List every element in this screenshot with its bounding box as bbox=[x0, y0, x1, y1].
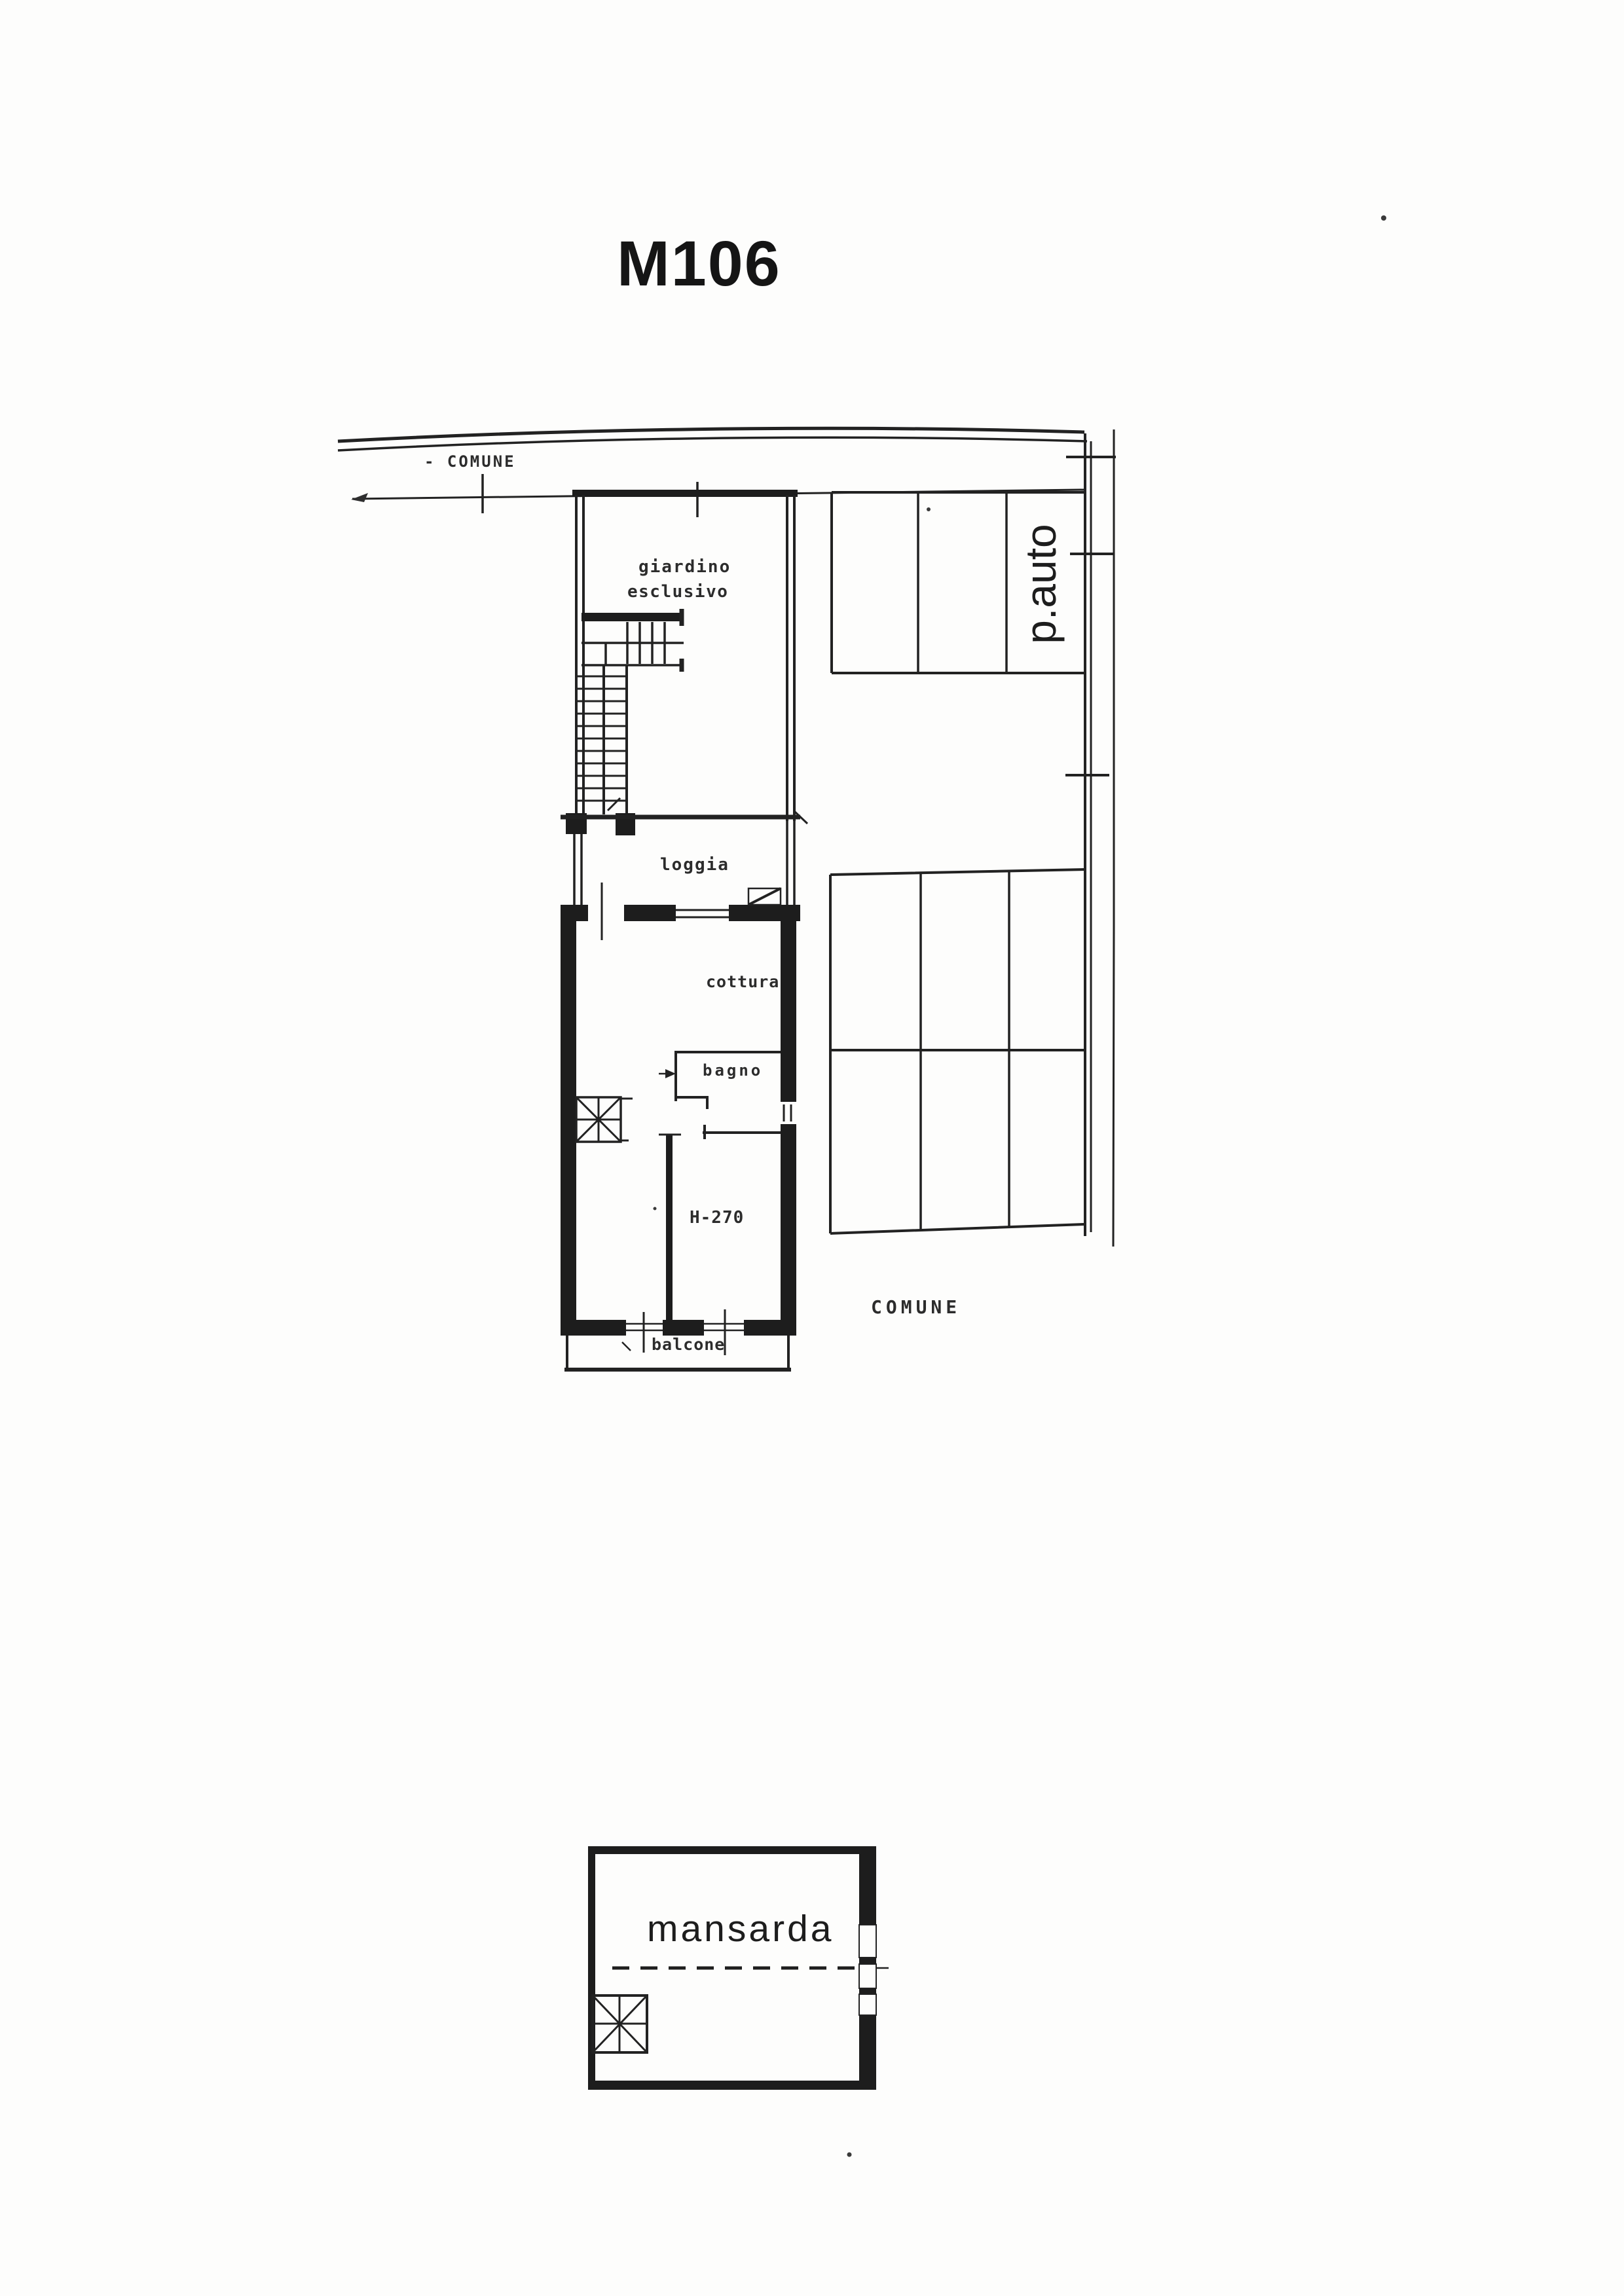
parking-upper-dividers bbox=[918, 494, 1006, 673]
ceiling-height-label: H-270 bbox=[690, 1208, 744, 1228]
attic-label: mansarda bbox=[647, 1908, 834, 1950]
partition-wall bbox=[666, 1134, 673, 1320]
floor-plan-drawing: M106 - COMUNE giardino esclusivo bbox=[0, 0, 1624, 2296]
comune-label-right: COMUNE bbox=[871, 1296, 961, 1318]
attic-bottom-wall bbox=[588, 2081, 868, 2090]
parking-lower-grid bbox=[830, 869, 1084, 1233]
attic-stair-icon-lines bbox=[593, 1995, 647, 2052]
loggia-label: loggia bbox=[660, 855, 729, 875]
scan-specks bbox=[654, 215, 1387, 2157]
apartment-right-wall-upper bbox=[781, 905, 796, 1102]
stair-lower-rails bbox=[604, 665, 627, 814]
balcony-label: balcone bbox=[652, 1335, 725, 1354]
loggia-window-lines bbox=[676, 910, 729, 917]
page-title: M106 bbox=[617, 228, 781, 299]
apartment-top-wall-mid bbox=[624, 905, 676, 921]
attic-right-wall-seg2 bbox=[859, 1958, 876, 1964]
comune-label-top: - COMUNE bbox=[424, 452, 516, 471]
internal-stair-icon bbox=[576, 1097, 633, 1142]
boundary-far-right-line bbox=[1113, 429, 1115, 1247]
stair-icon-extensions bbox=[621, 1099, 633, 1140]
bathroom-door-arrowhead bbox=[665, 1069, 676, 1078]
loggia-right-wall bbox=[787, 821, 794, 905]
attic-right-wall-seg4 bbox=[859, 2015, 876, 2090]
apartment-right-wall-lower bbox=[781, 1124, 796, 1336]
attic-window-slot1 bbox=[859, 1925, 876, 1958]
stair-upper-rails bbox=[581, 643, 684, 665]
apartment-left-wall bbox=[561, 905, 576, 1336]
garden-label-line2: esclusivo bbox=[627, 582, 728, 602]
speck-1 bbox=[1381, 215, 1386, 221]
speck-2 bbox=[847, 2153, 852, 2157]
bath-label: bagno bbox=[703, 1061, 763, 1080]
attic-top-wall bbox=[588, 1846, 862, 1854]
balcony-corner-tick bbox=[622, 1342, 631, 1351]
parking-lower-outline bbox=[830, 869, 1084, 1233]
room-partition bbox=[659, 1134, 681, 1320]
speck-3 bbox=[927, 507, 931, 511]
stair-upper-rail-thick bbox=[581, 613, 684, 621]
attic-right-wall-seg1 bbox=[859, 1846, 876, 1925]
apartment-bottom-wall-mid bbox=[663, 1320, 704, 1336]
speck-4 bbox=[654, 1207, 657, 1211]
attic-right-wall-seg3 bbox=[859, 1988, 876, 1994]
boundary-top-line-inner bbox=[338, 437, 1087, 450]
attic-window-slot2 bbox=[859, 1964, 876, 1988]
attic-plan bbox=[588, 1846, 889, 2090]
kitchen-label: cottura bbox=[706, 972, 779, 991]
external-staircase bbox=[576, 609, 684, 814]
garden-left-wall bbox=[576, 495, 583, 816]
right-wall-window-lines bbox=[784, 1104, 791, 1121]
scanned-floor-plan-page: M106 - COMUNE giardino esclusivo bbox=[0, 0, 1624, 2296]
loggia-left-wall bbox=[574, 834, 581, 905]
garden-top-wall bbox=[572, 490, 798, 497]
inner-boundary-arrowhead bbox=[351, 493, 368, 502]
stair-icon-lines bbox=[576, 1097, 621, 1142]
attic-window-slot3 bbox=[859, 1994, 876, 2015]
apartment-bottom-wall-right bbox=[744, 1320, 796, 1336]
parking-label: p.auto bbox=[1016, 524, 1065, 644]
garden-label-line1: giardino bbox=[638, 557, 731, 577]
site-boundary bbox=[338, 428, 1116, 1247]
garden-right-wall bbox=[787, 495, 794, 821]
apartment-bottom-wall-left bbox=[561, 1320, 626, 1336]
